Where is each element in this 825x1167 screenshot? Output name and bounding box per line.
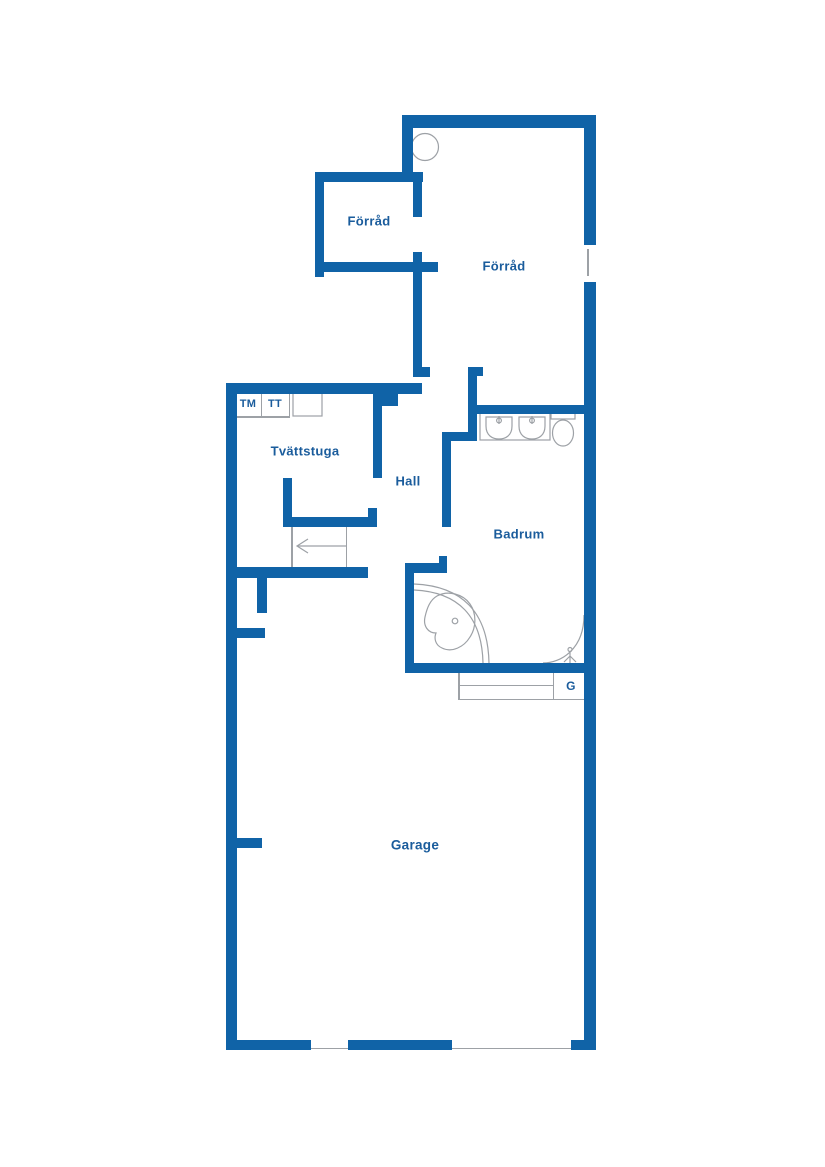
room-label-forrad-large: Förråd: [483, 259, 526, 274]
wall-segment: [315, 172, 423, 182]
wall-segment: [237, 838, 262, 848]
wall-segment: [442, 432, 451, 527]
thin-line: [291, 527, 293, 567]
floor-plan: FörrådFörrådTMTTTvättstugaHallBadrumGGar…: [0, 0, 825, 1167]
wall-segment: [348, 1040, 452, 1050]
laundry-appliance-box: [293, 393, 322, 416]
shower-enclosure: [543, 615, 584, 663]
wall-segment: [402, 115, 596, 128]
shower-head: [568, 648, 572, 652]
thin-line: [587, 249, 589, 276]
wall-segment: [439, 556, 447, 573]
thin-line: [458, 699, 585, 701]
sink-faucet-left: [497, 418, 502, 423]
wall-segment: [571, 1040, 596, 1050]
wall-segment: [283, 478, 292, 518]
closet-label-g: G: [566, 679, 576, 693]
wall-segment: [405, 563, 414, 673]
room-label-hall: Hall: [395, 474, 420, 489]
thin-line: [237, 416, 290, 418]
thin-line: [346, 527, 348, 567]
bathtub-basin: [425, 593, 475, 650]
room-label-forrad-small: Förråd: [348, 214, 391, 229]
wall-segment: [226, 567, 368, 578]
thin-line: [458, 673, 460, 700]
floor-drain: [412, 134, 439, 161]
room-label-garage: Garage: [391, 838, 439, 853]
toilet-bowl: [553, 420, 574, 446]
wall-segment: [413, 367, 430, 377]
appliance-label-tt: TT: [268, 398, 282, 410]
wall-segment: [368, 508, 377, 517]
bathtub-inner-rim: [414, 590, 483, 663]
vanity-counter: [480, 413, 550, 440]
room-label-badrum: Badrum: [494, 527, 545, 542]
room-label-tvattstuga: Tvättstuga: [271, 444, 340, 459]
thin-line: [553, 673, 555, 699]
wall-segment: [468, 374, 477, 434]
thin-line: [289, 394, 291, 416]
sink-bowl-right: [519, 417, 545, 439]
wall-segment: [283, 517, 377, 527]
stairs-arrow-head: [297, 539, 308, 553]
wall-segment: [373, 406, 382, 478]
bathtub-drain: [452, 618, 458, 624]
appliance-label-tm: TM: [240, 398, 256, 410]
shower-head-stem: [564, 652, 576, 663]
wall-segment: [584, 115, 596, 245]
sink-bowl-left: [486, 417, 512, 439]
wall-segment: [226, 383, 422, 394]
wall-segment: [237, 628, 265, 638]
wall-segment: [257, 578, 267, 613]
wall-segment: [413, 172, 422, 217]
wall-segment: [413, 252, 422, 377]
thin-line: [261, 394, 263, 416]
wall-segment: [405, 663, 596, 673]
thin-line: [458, 685, 553, 687]
wall-segment: [226, 383, 237, 1050]
wall-segment: [226, 1040, 311, 1050]
wall-segment: [373, 394, 398, 406]
wall-segment: [477, 405, 585, 414]
sink-faucet-right: [530, 418, 535, 423]
bathtub-outer-rim: [414, 584, 489, 663]
